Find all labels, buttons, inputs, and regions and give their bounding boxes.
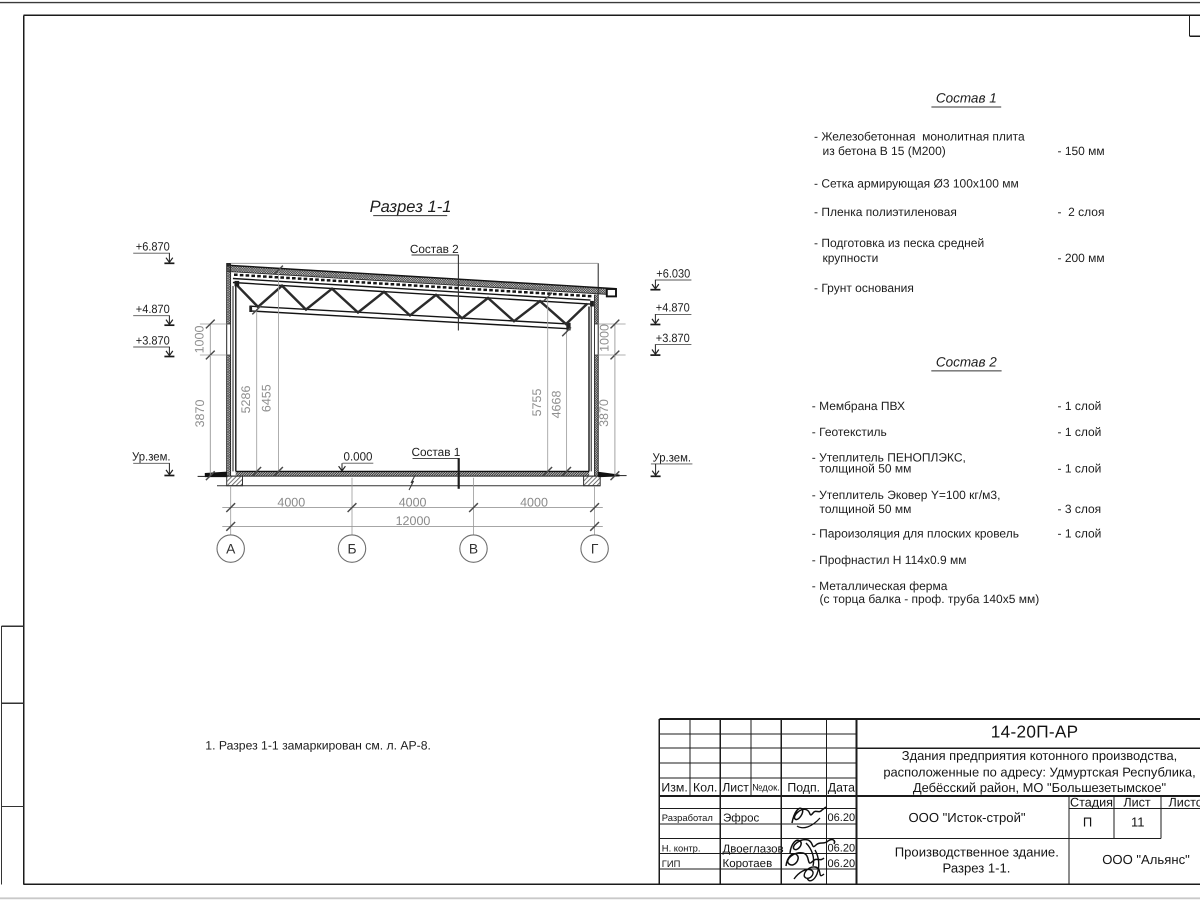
svg-text:- Мембрана ПВХ: - Мембрана ПВХ bbox=[812, 399, 905, 413]
svg-text:Изм.: Изм. bbox=[661, 781, 687, 795]
svg-text:- 2 слоя: - 2 слоя bbox=[1058, 205, 1105, 219]
svg-text:из бетона В 15 (М200): из бетона В 15 (М200) bbox=[823, 144, 946, 158]
svg-text:5755: 5755 bbox=[530, 389, 544, 417]
svg-text:- 1 слой: - 1 слой bbox=[1058, 399, 1102, 413]
svg-text:Состав 1: Состав 1 bbox=[936, 91, 997, 106]
svg-text:+3.870: +3.870 bbox=[656, 331, 690, 345]
svg-text:12000: 12000 bbox=[396, 514, 431, 528]
svg-text:Разрез 1-1: Разрез 1-1 bbox=[370, 198, 452, 216]
svg-text:11: 11 bbox=[1131, 814, 1145, 829]
svg-text:6455: 6455 bbox=[260, 384, 274, 412]
svg-text:Н. контр.: Н. контр. bbox=[662, 843, 701, 854]
svg-text:- 3 слоя: - 3 слоя bbox=[1058, 502, 1102, 516]
svg-text:- 150 мм: - 150 мм bbox=[1058, 144, 1105, 158]
svg-text:крупности: крупности bbox=[823, 251, 879, 265]
svg-text:4000: 4000 bbox=[277, 495, 305, 509]
svg-text:06.20: 06.20 bbox=[828, 858, 856, 870]
svg-text:Разработал: Разработал bbox=[662, 812, 713, 823]
svg-text:0.000: 0.000 bbox=[344, 449, 373, 463]
svg-text:3870: 3870 bbox=[597, 399, 611, 427]
svg-text:Подп.: Подп. bbox=[787, 781, 820, 795]
svg-text:1. Разрез 1-1 замаркирован см.: 1. Разрез 1-1 замаркирован см. л. АР-8. bbox=[205, 738, 431, 752]
svg-text:- Металлическая ферма: - Металлическая ферма bbox=[812, 579, 948, 593]
svg-text:Двоеглазов: Двоеглазов bbox=[723, 843, 784, 855]
svg-text:ГИП: ГИП bbox=[662, 858, 681, 869]
svg-text:- 1 слой: - 1 слой bbox=[1058, 527, 1102, 541]
svg-text:В: В bbox=[469, 542, 478, 557]
svg-text:14-20П-АР: 14-20П-АР bbox=[991, 722, 1079, 742]
svg-text:Г: Г bbox=[591, 542, 599, 557]
svg-text:толщиной 50 мм: толщиной 50 мм bbox=[820, 502, 912, 516]
svg-text:- 1 слой: - 1 слой bbox=[1058, 425, 1102, 439]
svg-text:+4.870: +4.870 bbox=[656, 301, 690, 315]
svg-text:Дебёсский район, МО "Большезет: Дебёсский район, МО "Большезетымское" bbox=[913, 780, 1167, 795]
svg-text:+3.870: +3.870 bbox=[136, 333, 170, 347]
svg-text:- 200 мм: - 200 мм bbox=[1058, 251, 1105, 265]
svg-text:- Грунт основания: - Грунт основания bbox=[814, 281, 914, 295]
svg-text:Коротаев: Коротаев bbox=[723, 858, 773, 870]
svg-text:Лист: Лист bbox=[1123, 796, 1151, 810]
svg-text:4668: 4668 bbox=[549, 391, 563, 419]
svg-text:- Профнастил Н 114х0.9 мм: - Профнастил Н 114х0.9 мм bbox=[812, 553, 967, 567]
svg-text:Здания предприятия котонного п: Здания предприятия котонного производств… bbox=[902, 748, 1177, 763]
svg-text:06.20: 06.20 bbox=[828, 843, 856, 855]
svg-text:Стадия: Стадия bbox=[1070, 796, 1113, 810]
svg-text:расположенные по адресу: Удмур: расположенные по адресу: Удмуртская Респ… bbox=[883, 765, 1195, 780]
svg-text:+6.870: +6.870 bbox=[136, 240, 170, 254]
svg-text:Кол.: Кол. bbox=[693, 781, 717, 795]
svg-text:Производственное здание.: Производственное здание. bbox=[895, 845, 1059, 860]
svg-text:№док.: №док. bbox=[752, 783, 780, 794]
svg-text:- Сетка армирующая Ø3 100х100: - Сетка армирующая Ø3 100х100 мм bbox=[814, 176, 1019, 190]
svg-text:- Пароизоляция для плоских кро: - Пароизоляция для плоских кровель bbox=[812, 527, 1019, 541]
svg-text:Состав 2: Состав 2 bbox=[410, 242, 459, 256]
svg-text:+4.870: +4.870 bbox=[136, 302, 170, 316]
svg-text:Состав 2: Состав 2 bbox=[936, 355, 997, 370]
svg-text:3870: 3870 bbox=[193, 400, 207, 428]
svg-text:1000: 1000 bbox=[192, 326, 206, 354]
svg-text:4000: 4000 bbox=[399, 495, 427, 509]
svg-text:А: А bbox=[226, 542, 236, 557]
svg-text:ООО "Исток-строй": ООО "Исток-строй" bbox=[908, 810, 1025, 825]
svg-text:+6.030: +6.030 bbox=[656, 266, 690, 280]
svg-text:- Пленка полиэтиленовая: - Пленка полиэтиленовая bbox=[814, 205, 957, 219]
svg-text:- Подготовка из песка средней: - Подготовка из песка средней bbox=[814, 236, 984, 250]
svg-text:- 1 слой: - 1 слой bbox=[1058, 462, 1102, 476]
svg-text:Эфрос: Эфрос bbox=[723, 812, 760, 824]
svg-text:Б: Б bbox=[347, 542, 356, 557]
svg-text:Состав 1: Состав 1 bbox=[411, 445, 460, 459]
svg-text:06.20: 06.20 bbox=[828, 812, 856, 824]
svg-text:Ур.зем.: Ур.зем. bbox=[653, 450, 692, 464]
svg-text:1000: 1000 bbox=[597, 324, 611, 352]
svg-text:Лист: Лист bbox=[722, 781, 749, 795]
svg-text:толщиной 50 мм: толщиной 50 мм bbox=[820, 462, 912, 476]
svg-text:5286: 5286 bbox=[239, 386, 253, 414]
svg-text:ООО "Альянс": ООО "Альянс" bbox=[1102, 852, 1190, 867]
svg-text:4000: 4000 bbox=[520, 495, 548, 509]
svg-text:- Геотекстиль: - Геотекстиль bbox=[812, 425, 887, 439]
svg-text:- Утеплитель Эковер Y=100 кг/м: - Утеплитель Эковер Y=100 кг/м3, bbox=[812, 488, 1001, 502]
svg-text:Дата: Дата bbox=[828, 781, 855, 795]
svg-text:Листов: Листов bbox=[1169, 796, 1200, 810]
svg-text:- Железобетонная монолитная п: - Железобетонная монолитная плита bbox=[814, 129, 1025, 143]
svg-text:Разрез 1-1.: Разрез 1-1. bbox=[943, 861, 1011, 876]
svg-text:(с торца балка - проф. труба 1: (с торца балка - проф. труба 140х5 мм) bbox=[820, 592, 1040, 606]
svg-text:Ур.зем.: Ур.зем. bbox=[132, 450, 171, 464]
svg-text:П: П bbox=[1083, 814, 1092, 829]
